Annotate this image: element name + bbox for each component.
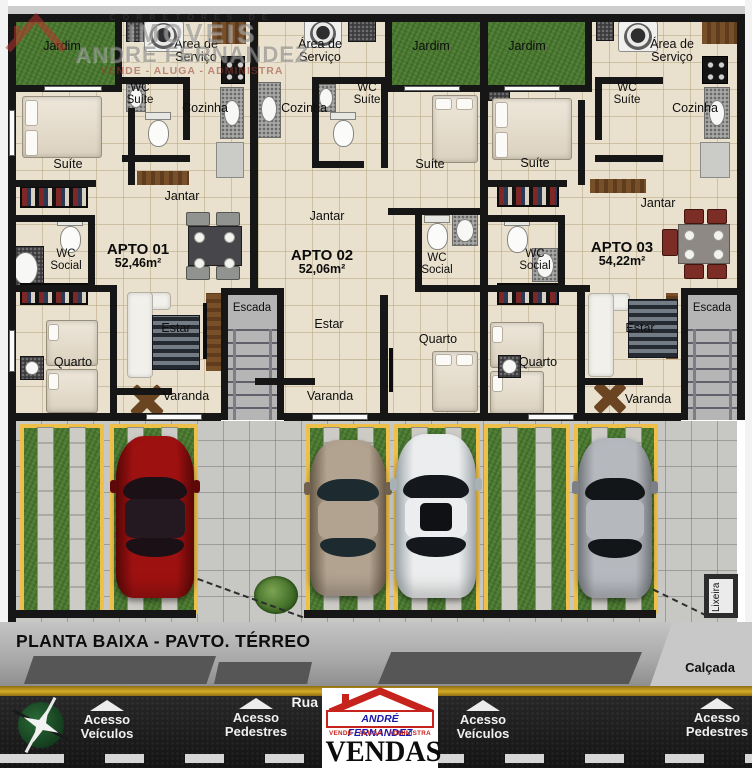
floor-plan-image: Lixeira <box>0 0 752 768</box>
room-label-area-servico-apt3: Área de Serviço <box>639 38 705 64</box>
car-roof <box>125 499 186 538</box>
wall-segment <box>480 14 488 413</box>
room-label-area-servico-apt1: Área de Serviço <box>163 38 229 64</box>
door-mat <box>137 171 189 185</box>
compass-rose <box>14 694 70 760</box>
dining-chair <box>662 229 678 256</box>
dining-chair <box>684 209 704 224</box>
wall-segment <box>681 288 741 295</box>
wall-segment <box>595 155 663 162</box>
car-windshield <box>403 475 469 500</box>
car-white <box>396 434 476 598</box>
room-label-jardim-apt3: Jardim <box>495 40 559 53</box>
room-label-jantar-apt1: Jantar <box>155 190 209 203</box>
wall-segment <box>8 180 96 187</box>
wall-segment <box>8 14 16 622</box>
wall-segment <box>595 77 602 140</box>
arrow-up-icon <box>466 700 500 711</box>
brand-logo: ANDRÉ FERNANDEZ VENDE - ALUGA - ADMINIST… <box>322 688 438 768</box>
room-label-escada-1: Escada <box>222 302 282 314</box>
room-label-estar-apt2: Estar <box>305 318 353 331</box>
pillow <box>456 354 473 366</box>
curb-notch <box>24 656 216 684</box>
room-label-cozinha-apt2: Cozinha <box>271 102 337 115</box>
window <box>9 330 15 372</box>
parking-stall-1 <box>20 424 104 614</box>
access-vehicles-label: Acesso Veículos <box>439 713 527 741</box>
car-mirror <box>110 480 117 493</box>
plate <box>713 230 724 241</box>
room-label-jardim-apt1: Jardim <box>30 40 94 53</box>
arrow-up-icon <box>700 698 734 709</box>
room-label-wc-social-apt2: WC Social <box>411 252 463 276</box>
apto-03-label: APTO 03 <box>584 240 660 255</box>
plate <box>194 258 205 269</box>
rua-label: Rua <box>268 694 318 710</box>
room-label-quarto-apt3: Quarto <box>511 356 565 369</box>
laundry-sink <box>126 21 144 42</box>
access-pedestrians-label: Acesso Pedestres <box>212 711 300 739</box>
window <box>44 86 102 91</box>
wall-segment <box>250 14 258 295</box>
tv-rack <box>389 348 393 392</box>
room-label-wc-suite-apt3: WC Suíte <box>604 82 650 106</box>
pillow <box>495 102 508 128</box>
dining-chair <box>707 264 727 279</box>
dining-chair <box>186 212 210 226</box>
wall-segment <box>487 180 567 187</box>
nightstand-lamp <box>25 361 39 375</box>
apto-01-area: 52,46m² <box>100 257 176 270</box>
car-red <box>116 436 194 598</box>
wall-segment <box>128 108 135 185</box>
apto-03-area: 54,22m² <box>584 255 660 268</box>
pillow <box>492 326 503 343</box>
room-label-quarto-apt1: Quarto <box>46 356 100 369</box>
pillow <box>495 132 508 158</box>
wall-segment <box>487 215 565 222</box>
wall-segment <box>737 14 745 420</box>
wall-segment <box>312 77 319 168</box>
sofa <box>127 292 153 378</box>
room-label-jardim-apt2: Jardim <box>399 40 463 53</box>
room-label-wc-social-apt1: WC Social <box>40 248 92 272</box>
wall-segment <box>578 100 585 185</box>
calcada-label: Calçada <box>672 660 748 675</box>
garden-apt3 <box>488 22 585 85</box>
room-label-cozinha-apt3: Cozinha <box>662 102 728 115</box>
car-windshield <box>123 477 187 501</box>
wall-segment <box>380 295 388 413</box>
sink-basin <box>456 219 474 242</box>
wall-segment <box>304 610 656 618</box>
paver-strip <box>502 428 517 610</box>
room-label-jantar-apt2: Jantar <box>300 210 354 223</box>
pillow <box>25 100 38 126</box>
stair-rail <box>693 329 696 420</box>
window <box>9 110 15 156</box>
shower-tray <box>13 252 38 285</box>
pillow <box>25 130 38 156</box>
room-label-wc-suite-apt1: WC Suíte <box>117 82 163 106</box>
plate <box>684 230 695 241</box>
toilet <box>148 120 169 147</box>
wall-segment <box>415 285 480 292</box>
wall-segment <box>255 378 315 385</box>
stair-rail <box>729 329 732 420</box>
room-label-wc-suite-apt2: WC Suíte <box>344 82 390 106</box>
parking-stall-5 <box>484 424 570 614</box>
left-margin <box>0 0 8 622</box>
wall-segment <box>585 378 643 385</box>
wall-segment <box>8 610 196 618</box>
laundry-sink <box>596 20 614 41</box>
pillow <box>48 373 59 390</box>
room-label-escada-3: Escada <box>682 302 742 314</box>
stair-rail <box>269 329 272 420</box>
plan-title: PLANTA BAIXA - PAVTO. TÉRREO <box>16 631 310 652</box>
wall-segment <box>115 14 122 92</box>
car-roof <box>318 501 377 538</box>
plate <box>224 232 235 243</box>
curb-notch <box>214 662 312 684</box>
room-label-estar-apt1: Estar <box>152 322 200 335</box>
window <box>504 86 560 91</box>
room-label-varanda-apt3: Varanda <box>618 393 678 406</box>
plate <box>224 258 235 269</box>
car-mirror <box>390 478 397 491</box>
room-label-jantar-apt3: Jantar <box>631 197 685 210</box>
paver-strip <box>70 428 85 610</box>
car-windshield <box>585 478 646 502</box>
sliding-door <box>528 414 574 420</box>
stair-closet <box>206 293 221 371</box>
car-tan <box>310 440 386 596</box>
dining-chair <box>707 209 727 224</box>
toilet-tank <box>145 112 171 120</box>
wall-segment <box>312 161 364 168</box>
room-label-suite-apt1: Suíte <box>42 158 94 171</box>
car-mirror <box>572 481 579 494</box>
plate <box>684 249 695 260</box>
garden-apt2 <box>392 22 480 85</box>
wardrobe <box>497 185 559 207</box>
room-label-cozinha-apt1: Cozinha <box>172 102 238 115</box>
wall-segment <box>585 14 592 92</box>
plate <box>194 232 205 243</box>
stair-rail <box>233 329 236 420</box>
right-margin <box>745 0 752 622</box>
car-silver <box>578 438 652 598</box>
arrow-up-icon <box>90 700 124 711</box>
door-mat <box>590 179 646 193</box>
wardrobe <box>20 186 88 208</box>
car-sunroof <box>420 503 452 531</box>
pillow <box>435 354 452 366</box>
stove <box>702 56 728 84</box>
apto-02-label: APTO 02 <box>284 248 360 263</box>
room-label-quarto-apt2: Quarto <box>411 333 465 346</box>
top-sidewalk-strip <box>8 6 745 14</box>
dining-chair <box>216 212 240 226</box>
access-pedestrians-label: Acesso Pedestres <box>673 711 752 739</box>
paver-strip <box>38 428 53 610</box>
pillow <box>48 324 59 341</box>
wall-segment <box>487 285 590 292</box>
toilet <box>333 120 354 147</box>
window <box>404 86 460 91</box>
sofa <box>588 293 614 377</box>
room-label-area-servico-apt2: Área de Serviço <box>287 38 353 64</box>
wall-segment <box>221 288 284 295</box>
garden-apt1 <box>16 22 115 85</box>
kitchen-table <box>216 142 244 178</box>
paver-strip <box>536 428 551 610</box>
curb-notch <box>378 652 642 684</box>
logo-name: ANDRÉ FERNANDEZ <box>326 710 434 728</box>
wall-segment <box>577 285 585 413</box>
trash-area-label: Lixeira <box>711 581 731 613</box>
room-label-varanda-apt1: Varanda <box>156 390 216 403</box>
wall-segment <box>388 208 480 215</box>
car-windshield <box>317 479 379 502</box>
pillow <box>456 98 473 110</box>
apto-02-area: 52,06m² <box>284 263 360 276</box>
car-mirror <box>651 481 658 494</box>
wood-counter <box>702 22 737 44</box>
room-label-wc-social-apt3: WC Social <box>509 248 561 272</box>
toilet <box>427 223 448 250</box>
plate <box>713 249 724 260</box>
apto-01-label: APTO 01 <box>100 242 176 257</box>
room-label-suite-apt2: Suíte <box>404 158 456 171</box>
kitchen-table <box>700 142 730 178</box>
pillow <box>435 98 452 110</box>
room-label-estar-apt3: Estar <box>616 322 664 335</box>
sliding-door <box>146 414 202 420</box>
car-mirror <box>193 480 200 493</box>
toilet-tank <box>424 215 450 223</box>
trash-area: Lixeira <box>704 574 738 618</box>
room-label-varanda-apt2: Varanda <box>300 390 360 403</box>
car-mirror <box>304 482 311 495</box>
wall-segment <box>8 215 95 222</box>
car-mirror <box>475 478 482 491</box>
tv-rack <box>203 303 207 359</box>
sliding-door <box>312 414 368 420</box>
logo-vendas: VENDAS <box>325 737 434 767</box>
access-vehicles-label: Acesso Veículos <box>63 713 151 741</box>
wall-segment <box>8 285 117 292</box>
dining-chair <box>684 264 704 279</box>
room-label-suite-apt3: Suíte <box>509 157 561 170</box>
car-roof <box>586 500 644 538</box>
